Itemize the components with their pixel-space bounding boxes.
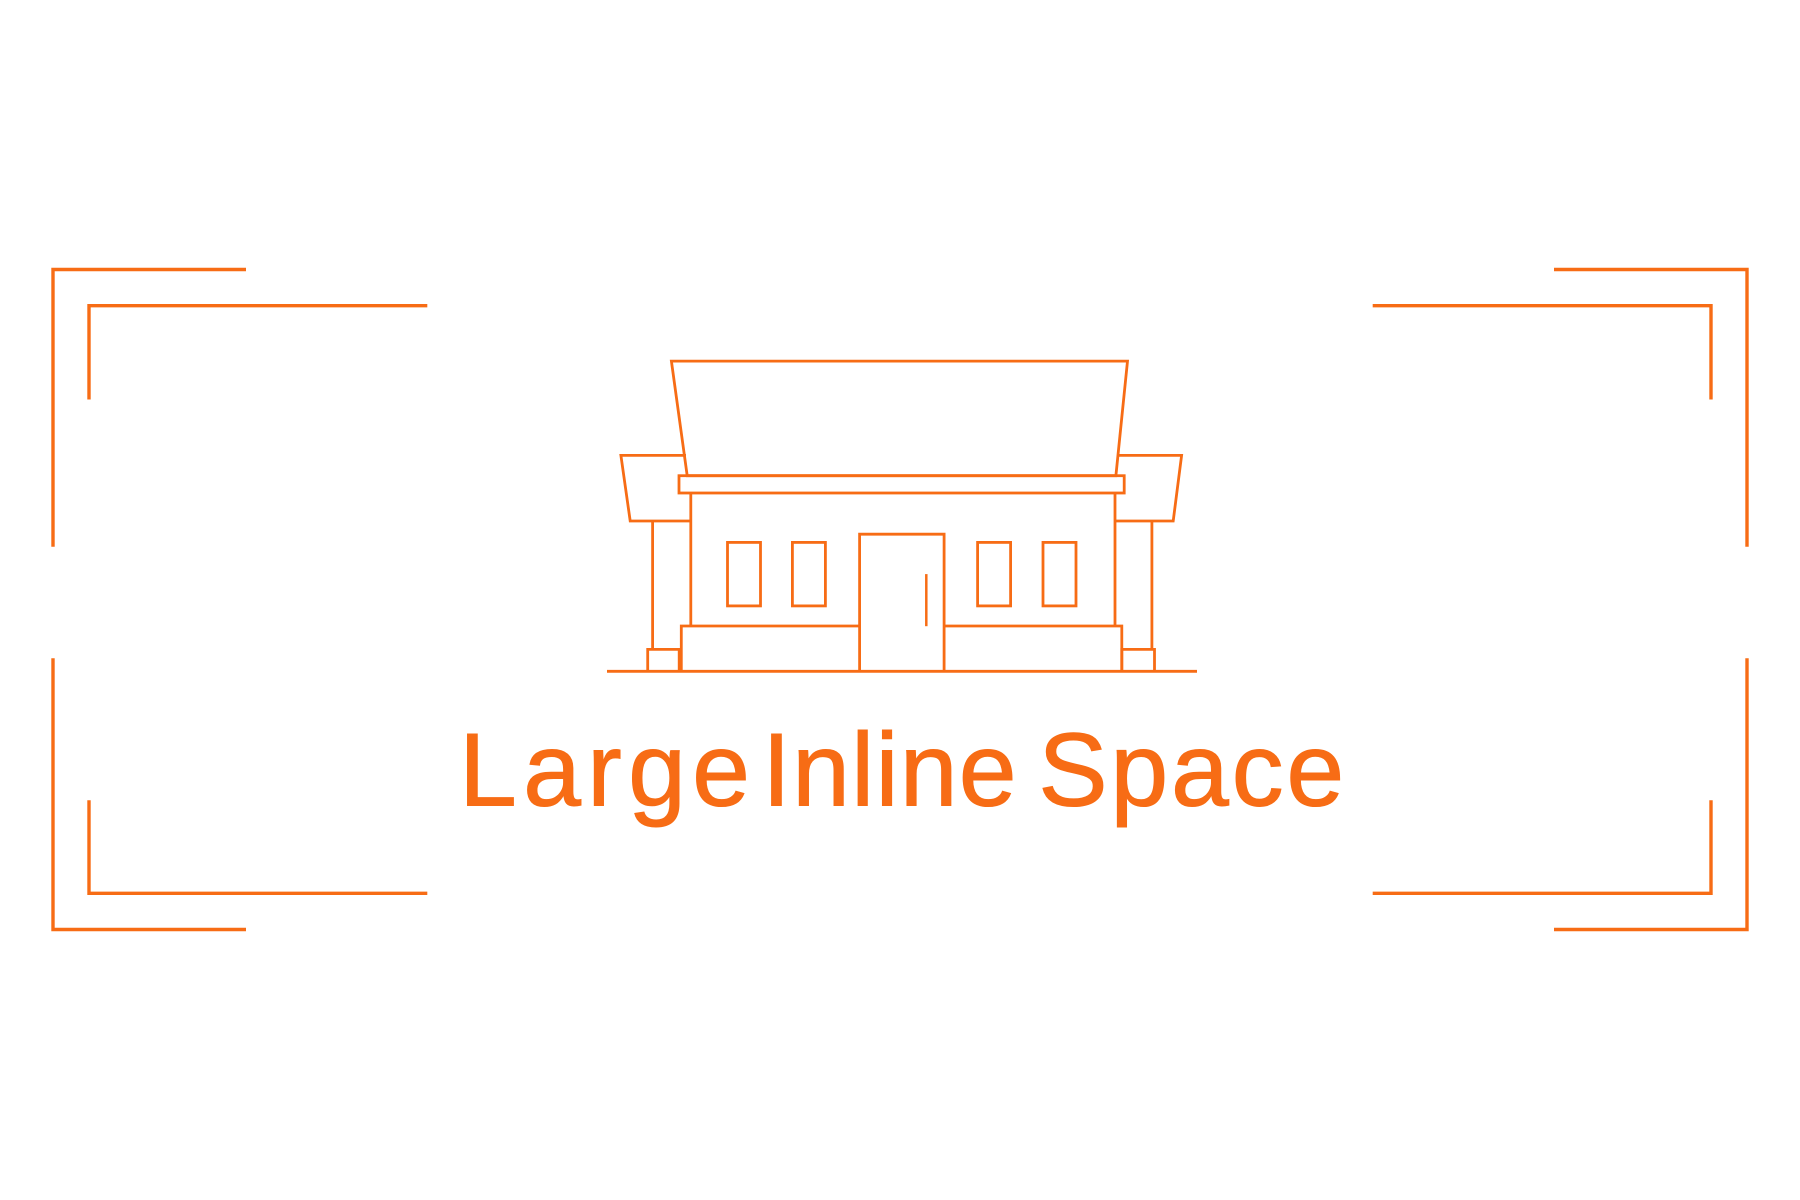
- svg-text:Large: Large: [459, 713, 756, 829]
- svg-text:Inline: Inline: [762, 713, 1018, 829]
- svg-text:Space: Space: [1038, 713, 1347, 829]
